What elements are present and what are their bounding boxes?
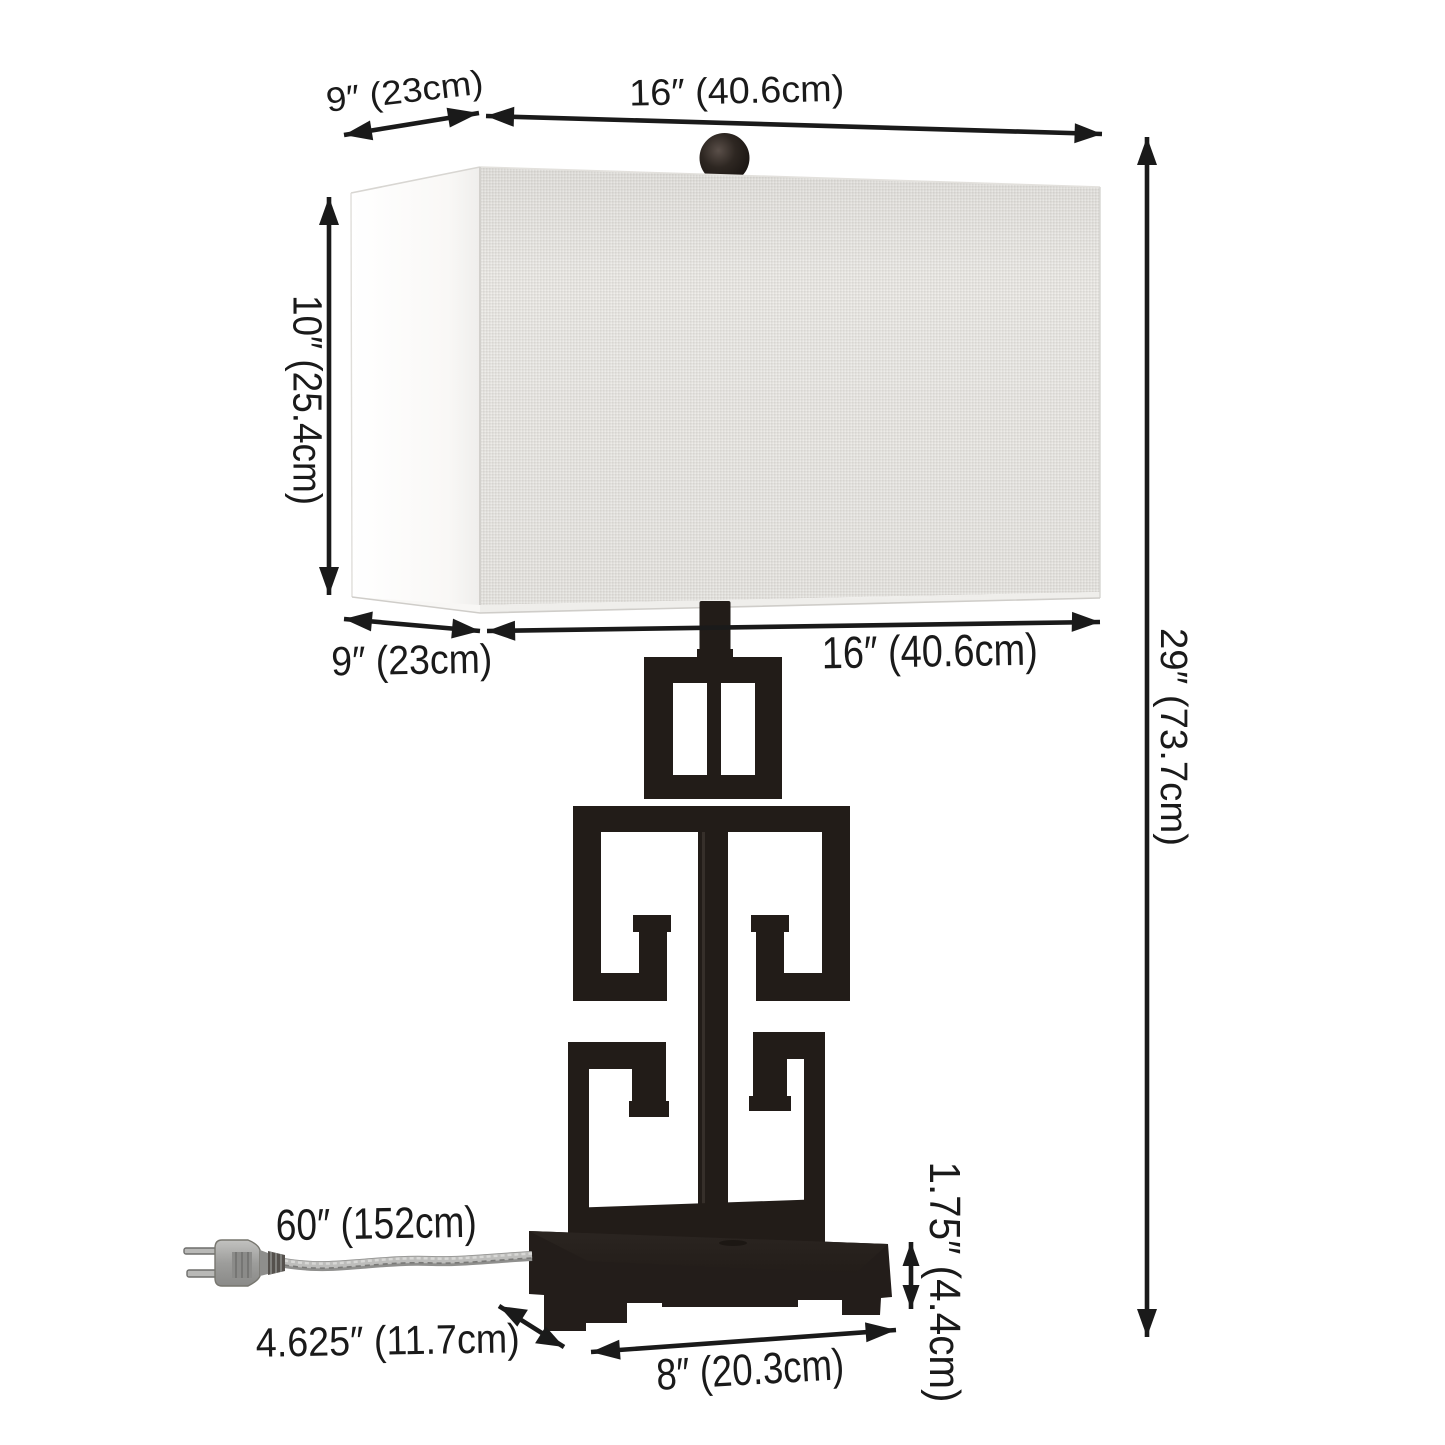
svg-text:29″ (73.7cm): 29″ (73.7cm) <box>1152 628 1194 846</box>
svg-text:1.75″ (4.4cm): 1.75″ (4.4cm) <box>920 1162 969 1403</box>
svg-text:9″ (23cm): 9″ (23cm) <box>331 636 493 685</box>
svg-text:10″ (25.4cm): 10″ (25.4cm) <box>285 295 331 505</box>
svg-text:60″ (152cm): 60″ (152cm) <box>275 1198 477 1251</box>
svg-text:16″ (40.6cm): 16″ (40.6cm) <box>821 624 1038 679</box>
svg-text:16″ (40.6cm): 16″ (40.6cm) <box>629 68 845 114</box>
svg-text:4.625″ (11.7cm): 4.625″ (11.7cm) <box>255 1315 520 1366</box>
